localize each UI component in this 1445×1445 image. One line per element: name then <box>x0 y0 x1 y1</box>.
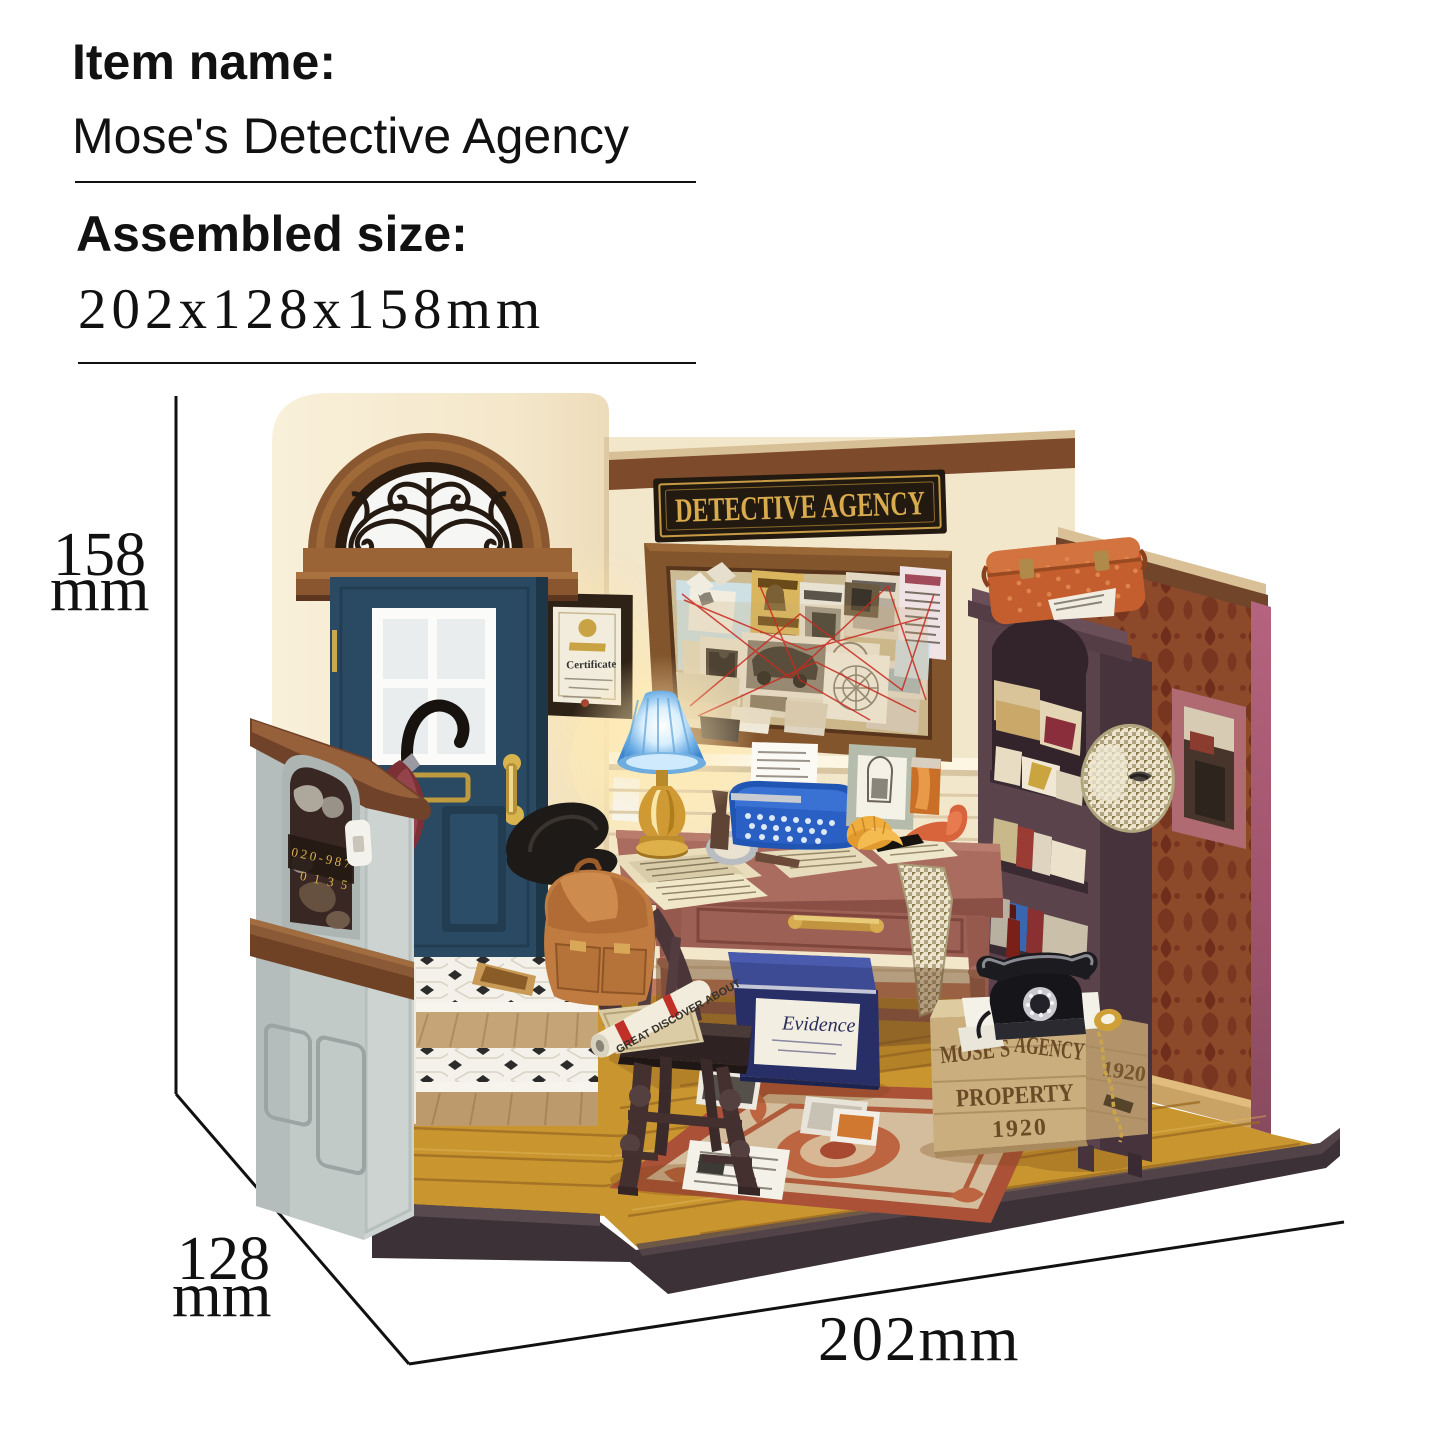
svg-text:Evidence: Evidence <box>781 1012 856 1037</box>
svg-text:DETECTIVE AGENCY: DETECTIVE AGENCY <box>675 485 926 530</box>
svg-text:1920: 1920 <box>991 1114 1048 1143</box>
